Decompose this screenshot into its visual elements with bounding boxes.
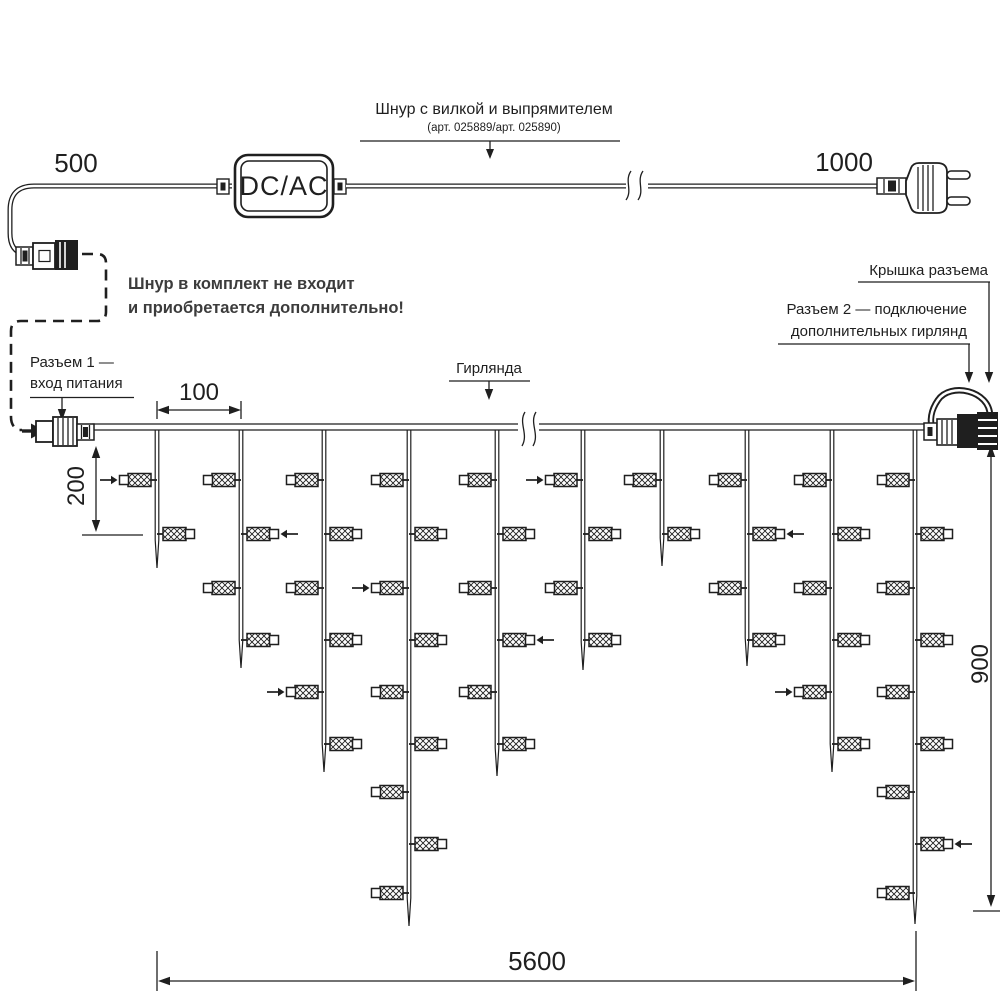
- led-lamp-icon: [241, 634, 279, 647]
- icicle-drop: [625, 429, 700, 566]
- led-lamp-icon: [915, 528, 953, 541]
- led-lamp-icon: [204, 474, 242, 487]
- garland-label: Гирлянда: [456, 360, 522, 377]
- led-lamp-icon: [583, 634, 621, 647]
- led-lamp-icon: [878, 887, 916, 900]
- dimension-100-value: 100: [179, 379, 219, 406]
- led-lamp-icon: [710, 474, 748, 487]
- led-lamp-icon: [324, 738, 362, 751]
- flash-arrow-icon: [352, 584, 370, 592]
- led-lamp-icon: [324, 528, 362, 541]
- drop-wire: [239, 429, 243, 668]
- cord-break-icon: [626, 171, 643, 200]
- power-cord: 500 DC/AC: [10, 101, 970, 270]
- cord-connector-icon: [16, 240, 78, 270]
- drop-wire: [913, 429, 917, 924]
- led-lamp-icon: [497, 634, 535, 647]
- led-lamp-icon: [157, 528, 195, 541]
- led-lamp-icon: [460, 686, 498, 699]
- flash-arrow-icon: [787, 530, 805, 538]
- led-lamp-icon: [662, 528, 700, 541]
- led-lamp-icon: [409, 738, 447, 751]
- led-lamp-icon: [460, 474, 498, 487]
- led-lamp-icon: [204, 582, 242, 595]
- cord-label-callout: Шнур с вилкой и выпрямителем (арт. 02588…: [360, 101, 620, 159]
- dimension-5600: 5600: [157, 931, 916, 991]
- led-lamp-icon: [915, 738, 953, 751]
- led-lamp-icon: [583, 528, 621, 541]
- led-lamp-icon: [878, 474, 916, 487]
- dimension-5600-value: 5600: [508, 946, 566, 976]
- led-lamp-icon: [832, 738, 870, 751]
- led-lamp-icon: [878, 686, 916, 699]
- flash-arrow-icon: [537, 636, 555, 644]
- led-lamp-icon: [324, 634, 362, 647]
- led-lamp-icon: [287, 474, 325, 487]
- led-lamp-icon: [795, 686, 833, 699]
- connector2-callout: Разъем 2 — подключение дополнительных ги…: [778, 301, 973, 383]
- led-lamp-icon: [747, 634, 785, 647]
- drop-wire: [745, 429, 749, 666]
- icicle-drop: [710, 429, 805, 666]
- led-lamp-icon: [241, 528, 279, 541]
- dc-ac-converter: DC/AC: [217, 155, 346, 217]
- led-lamp-icon: [497, 738, 535, 751]
- dimension-200-value: 200: [63, 466, 90, 506]
- led-lamp-icon: [546, 474, 584, 487]
- icicle-drop: [775, 429, 870, 772]
- down-arrow-icon: [965, 372, 973, 383]
- led-lamp-icon: [409, 528, 447, 541]
- dimension-900: 900: [967, 445, 1000, 911]
- icicle-light-diagram: 500 DC/AC: [0, 0, 1000, 1000]
- connector1-label-line1: Разъем 1 —: [30, 354, 114, 371]
- down-arrow-icon: [985, 372, 993, 383]
- led-lamp-icon: [878, 786, 916, 799]
- led-lamp-icon: [832, 634, 870, 647]
- led-lamp-icon: [795, 474, 833, 487]
- drop-wire: [495, 429, 499, 776]
- led-lamp-icon: [372, 887, 410, 900]
- led-lamp-icon: [832, 528, 870, 541]
- dimension-200: 200: [63, 446, 143, 535]
- connector2-label-line1: Разъем 2 — подключение: [786, 301, 967, 318]
- flash-arrow-icon: [281, 530, 299, 538]
- led-lamp-icon: [915, 838, 953, 851]
- note-line-2: и приобретается дополнительно!: [128, 299, 404, 317]
- garland-main-wire: [93, 412, 927, 446]
- drop-wire: [581, 429, 585, 670]
- down-arrow-icon: [486, 149, 494, 159]
- drop-wire: [155, 429, 159, 568]
- icicle-drop: [204, 429, 299, 668]
- dimension-500: 500: [54, 148, 97, 178]
- led-lamp-icon: [409, 634, 447, 647]
- connector2-label-line2: дополнительных гирлянд: [791, 323, 967, 340]
- connector1-callout: Разъем 1 — вход питания: [30, 354, 134, 421]
- icicle-drops-layer: [100, 429, 972, 926]
- icicle-drop: [100, 429, 195, 568]
- flash-arrow-icon: [100, 476, 118, 484]
- cord-note: Шнур в комплект не входит и приобретаетс…: [128, 275, 404, 317]
- dimension-1000: 1000: [815, 147, 873, 177]
- led-lamp-icon: [287, 686, 325, 699]
- flash-arrow-icon: [267, 688, 285, 696]
- dimension-900-value: 900: [967, 644, 994, 684]
- led-lamp-icon: [878, 582, 916, 595]
- diagram-canvas: 500 DC/AC: [0, 0, 1000, 1000]
- led-lamp-icon: [625, 474, 663, 487]
- flash-arrow-icon: [955, 840, 973, 848]
- down-arrow-icon: [485, 389, 493, 400]
- flash-arrow-icon: [775, 688, 793, 696]
- flash-arrow-icon: [526, 476, 544, 484]
- led-lamp-icon: [747, 528, 785, 541]
- led-lamp-icon: [546, 582, 584, 595]
- led-lamp-icon: [710, 582, 748, 595]
- cord-label: Шнур с вилкой и выпрямителем: [375, 101, 612, 118]
- led-lamp-icon: [497, 528, 535, 541]
- garland-callout: Гирлянда: [449, 360, 530, 400]
- cord-label-articles: (арт. 025889/арт. 025890): [427, 122, 561, 134]
- led-lamp-icon: [372, 582, 410, 595]
- led-lamp-icon: [287, 582, 325, 595]
- led-lamp-icon: [372, 786, 410, 799]
- connector-2-icon: [924, 390, 998, 450]
- led-lamp-icon: [795, 582, 833, 595]
- power-plug-icon: [877, 163, 970, 213]
- note-line-1: Шнур в комплект не входит: [128, 275, 355, 293]
- icicle-drop: [267, 429, 362, 772]
- drop-wire: [407, 429, 411, 926]
- icicle-drop: [352, 429, 447, 926]
- led-lamp-icon: [409, 838, 447, 851]
- drop-wire: [660, 429, 664, 566]
- led-lamp-icon: [915, 634, 953, 647]
- led-lamp-icon: [120, 474, 158, 487]
- connector-1-icon: [36, 417, 94, 446]
- led-lamp-icon: [372, 474, 410, 487]
- icicle-drop: [878, 429, 973, 924]
- icicle-drop: [526, 429, 621, 670]
- connector-cap-label: Крышка разъема: [869, 262, 988, 279]
- connector1-label-line2: вход питания: [30, 375, 123, 392]
- led-lamp-icon: [460, 582, 498, 595]
- dimension-100: 100: [157, 379, 241, 419]
- converter-label: DC/AC: [239, 171, 328, 201]
- led-lamp-icon: [372, 686, 410, 699]
